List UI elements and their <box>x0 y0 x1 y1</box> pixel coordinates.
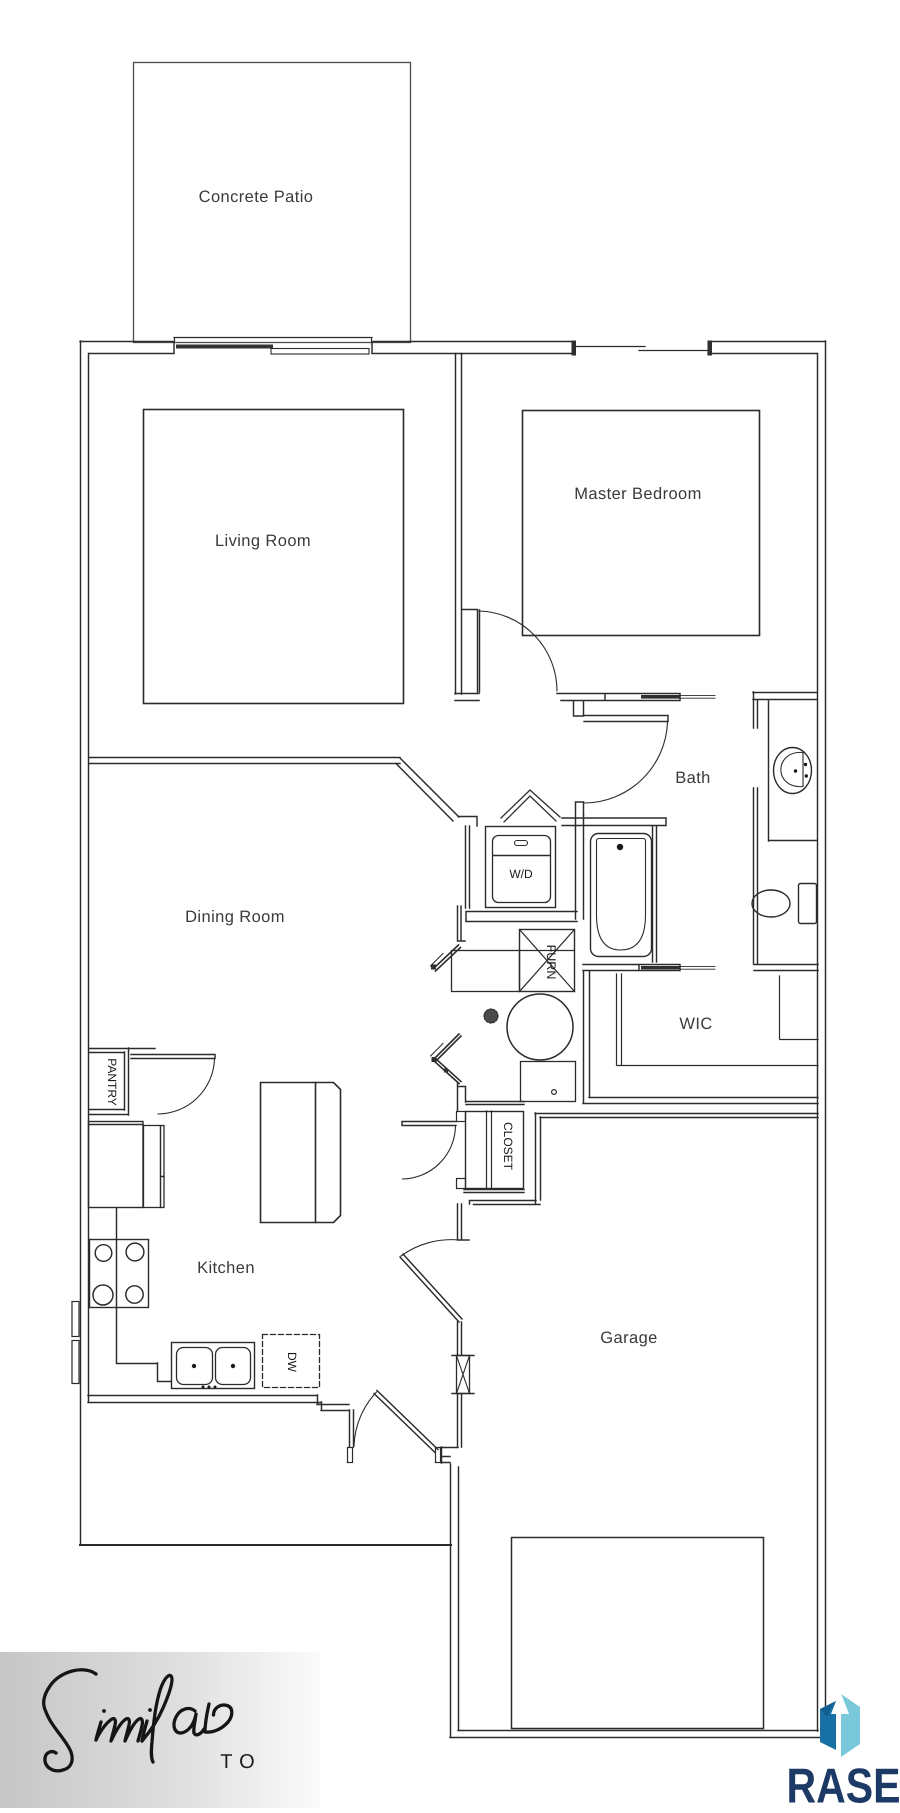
svg-text:TO: TO <box>220 1751 261 1773</box>
svg-text:CLOSET: CLOSET <box>501 1122 515 1171</box>
svg-text:Dining Room: Dining Room <box>185 908 285 926</box>
svg-text:WIC: WIC <box>679 1015 712 1033</box>
svg-text:Kitchen: Kitchen <box>197 1259 255 1277</box>
svg-text:Master Bedroom: Master Bedroom <box>574 485 702 503</box>
svg-text:DW: DW <box>285 1352 299 1373</box>
svg-text:W/D: W/D <box>509 867 533 881</box>
svg-text:Bath: Bath <box>675 769 711 787</box>
svg-text:PANTRY: PANTRY <box>105 1058 119 1106</box>
svg-text:Garage: Garage <box>600 1329 657 1347</box>
svg-text:FURN: FURN <box>544 945 558 980</box>
svg-text:Concrete Patio: Concrete Patio <box>199 188 314 206</box>
svg-text:RASE: RASE <box>787 1760 900 1809</box>
svg-text:Living Room: Living Room <box>215 532 311 550</box>
